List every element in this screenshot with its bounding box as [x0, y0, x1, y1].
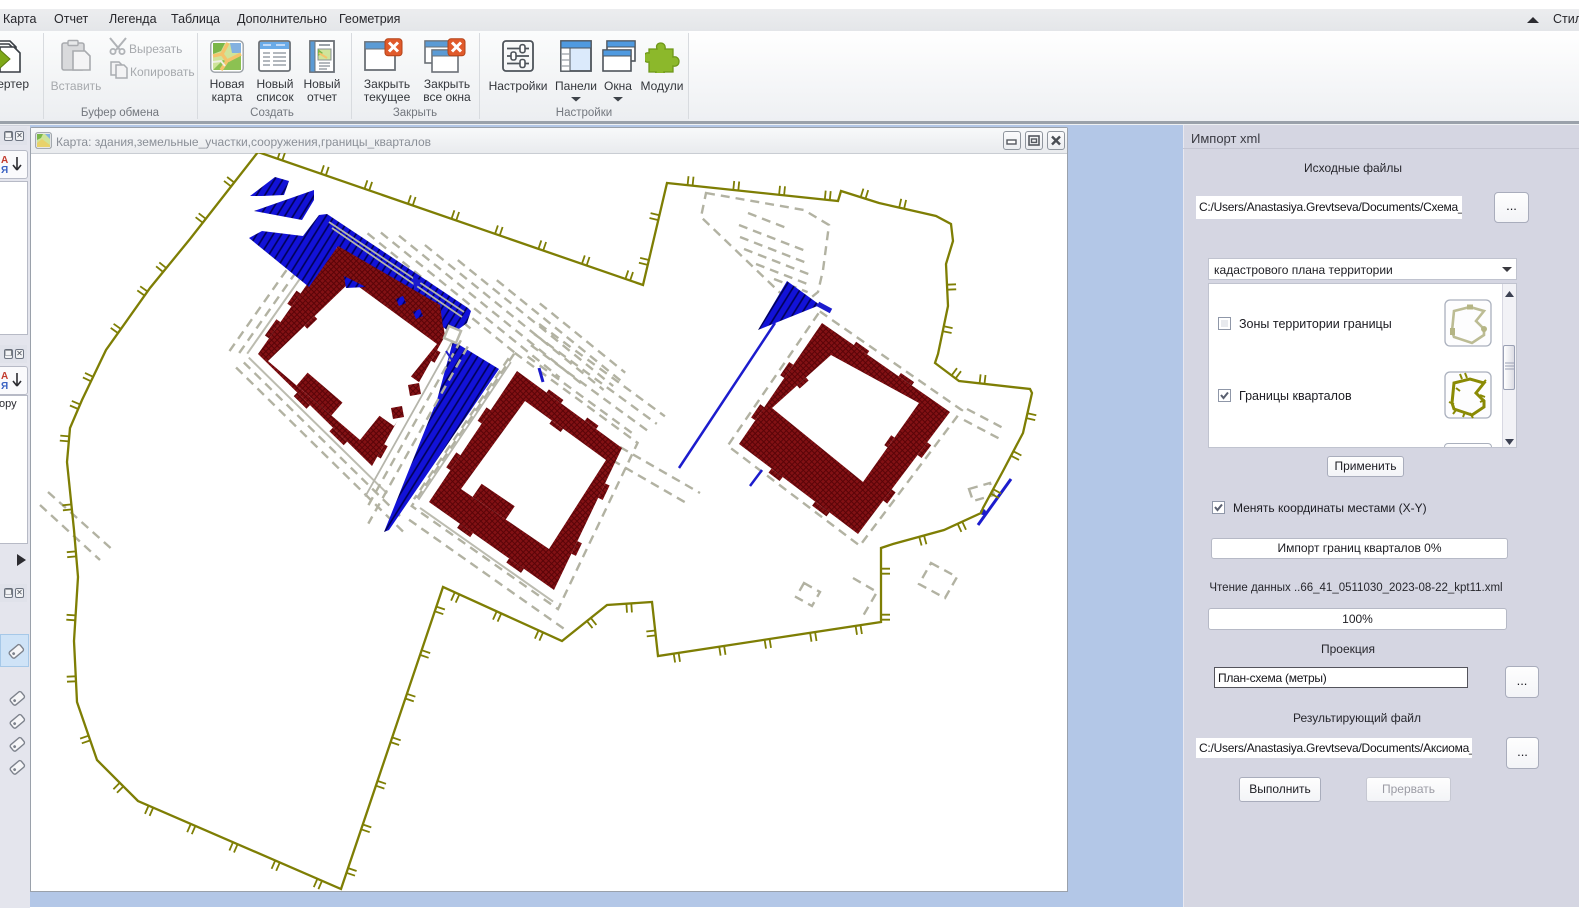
- svg-text:Я: Я: [1, 381, 8, 391]
- svg-text:Я: Я: [1, 165, 8, 175]
